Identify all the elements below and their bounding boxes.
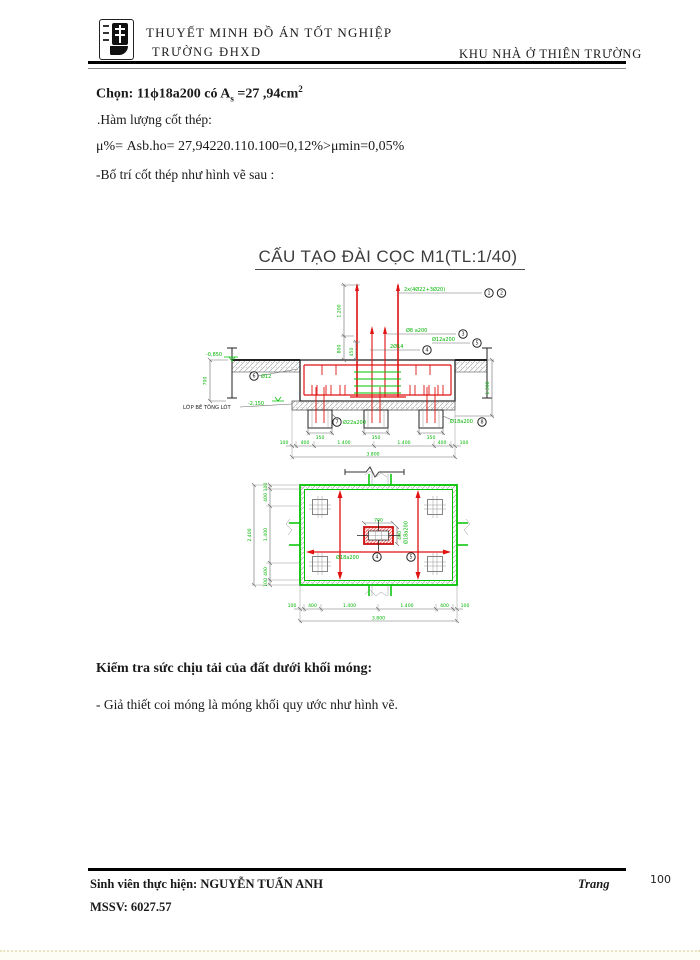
doc-title: THUYẾT MINH ĐỒ ÁN TỐT NGHIỆP — [146, 25, 392, 41]
dim-total-label: 3.800 — [366, 452, 379, 458]
dim-label: 400 — [263, 493, 269, 502]
school-name: TRƯỜNG ĐHXD — [152, 45, 262, 60]
dim-label: 400 — [301, 440, 310, 446]
dim-label: 100 — [280, 440, 289, 446]
dim-label: 700 — [203, 377, 209, 386]
footer-rule — [88, 868, 626, 871]
dim-total-label: 3.800 — [372, 616, 385, 622]
callout-label: 2Ø14 — [390, 343, 403, 350]
bar-mark-bubble: 2 — [500, 291, 503, 297]
bar-mark-bubble: 8 — [480, 420, 483, 426]
dim-label: 350 — [372, 435, 381, 441]
callout-label: Ø22a200 — [343, 419, 366, 426]
check-line: - Giả thiết coi móng là móng khối quy ướ… — [96, 697, 398, 713]
dim-label: 1.400 — [263, 528, 269, 541]
chosen-rebar-line: Chọn: 11ϕ18a200 có As =27 ,94cm2 — [96, 84, 303, 103]
bar-mark-bubble: 5 — [409, 555, 412, 561]
level-label: -0,850 — [206, 352, 222, 358]
project-name: KHU NHÀ Ở THIÊN TRƯỜNG — [459, 47, 642, 62]
dim-label: 1.300 — [485, 381, 491, 394]
dim-label: 800 — [337, 345, 343, 354]
mu-formula-line: μ%= Asb.ho= 27,94220.110.100=0,12%>μmin=… — [96, 139, 404, 155]
bar-mark-bubble: 4 — [425, 348, 428, 354]
dim-label: 1.400 — [337, 440, 350, 446]
callout-label: 2x(4Ø22+3Ø20) — [404, 286, 445, 293]
dim-label: 450 — [349, 348, 355, 357]
ham-luong-line: .Hàm lượng cốt thép: — [97, 112, 212, 128]
plan-left-dims: 100 400 1.400 400 100 2.400 — [247, 483, 300, 587]
section-view: 1.200 800 450 2x(4Ø22+3Ø20) 1 2 Ø8 a200 … — [183, 283, 506, 477]
pile-cap-drawing: 1.200 800 450 2x(4Ø22+3Ø20) 1 2 Ø8 a200 … — [180, 276, 520, 636]
dim-label: 100 — [460, 440, 469, 446]
dim-label: 400 — [438, 440, 447, 446]
dim-label: 100 — [288, 603, 297, 609]
header-rule — [88, 61, 626, 69]
bo-tri-line: -Bố trí cốt thép như hình vẽ sau : — [96, 167, 274, 183]
lean-concrete-label: LỚP BÊ TÔNG LÓT — [183, 403, 231, 411]
dim-label: 350 — [316, 435, 325, 441]
piles-section — [308, 410, 443, 428]
dim-label: 400 — [263, 567, 269, 576]
bar-mark-bubble: 3 — [461, 332, 464, 338]
callout-label: Ø12 — [261, 373, 271, 380]
bar-mark-bubble: 5 — [475, 341, 478, 347]
dim-label: 700 — [374, 518, 383, 524]
document-page: THUYẾT MINH ĐỒ ÁN TỐT NGHIỆP TRƯỜNG ĐHXD… — [0, 0, 700, 960]
pile-width-dims: 350 350 350 — [306, 428, 445, 441]
page-label: Trang — [578, 877, 610, 892]
dim-label: 100 — [263, 578, 269, 587]
dim-label: 1.400 — [397, 440, 410, 446]
page-number: 100 — [650, 873, 671, 886]
dim-label: 1.400 — [400, 603, 413, 609]
dim-total-label: 2.400 — [247, 528, 253, 541]
dim-label: 1.200 — [337, 304, 343, 317]
callout-label: Ø8 a200 — [406, 327, 427, 334]
bar-mark-bubble: 1 — [487, 291, 490, 297]
student-id: MSSV: 6027.57 — [90, 900, 172, 915]
dim-label: 400 — [308, 603, 317, 609]
dim-label: 400 — [397, 531, 403, 540]
plan-view: 700 400 Ø18a200 4 5 Ø18a200 — [247, 471, 470, 623]
student-line: Sinh viên thực hiện: NGUYỄN TUẤN ANH — [90, 877, 323, 892]
bar-mark-bubble: 7 — [335, 420, 338, 426]
dim-label: 350 — [427, 435, 436, 441]
callout-label: Ø18a200 — [403, 521, 410, 544]
drawing-title: CẤU TẠO ĐÀI CỌC M1(TL:1/40) — [225, 247, 555, 270]
university-logo — [99, 19, 134, 60]
plan-bottom-dims: 100 400 1.400 1.400 400 100 3.800 — [288, 585, 470, 623]
bar-mark-bubble: 4 — [375, 555, 378, 561]
dim-label: 400 — [440, 603, 449, 609]
plan-column: 700 400 — [357, 518, 403, 552]
callout-label: Ø18a200 — [336, 554, 359, 561]
dim-label: 100 — [263, 483, 269, 492]
callout-label: Ø18a200 — [450, 418, 473, 425]
check-heading: Kiểm tra sức chịu tải của đất dưới khối … — [96, 661, 372, 677]
lean-concrete-strip — [292, 401, 455, 410]
bar-mark-bubble: 6 — [252, 374, 255, 380]
scan-bottom-edge — [0, 950, 700, 960]
callout-label: Ø12a200 — [432, 336, 455, 343]
dim-label: 1.400 — [343, 603, 356, 609]
dim-label: 100 — [461, 603, 470, 609]
